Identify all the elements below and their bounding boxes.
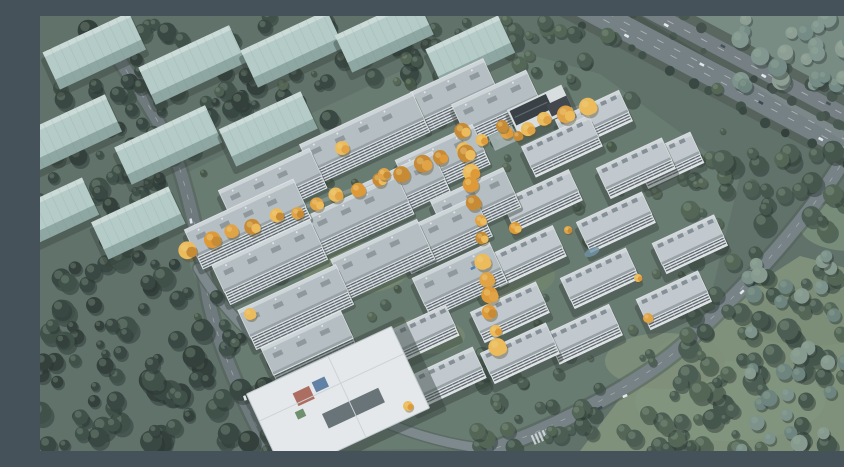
rendering-canvas xyxy=(40,16,844,451)
aerial-rendering xyxy=(40,16,844,451)
layer-atmosphere xyxy=(40,16,844,451)
